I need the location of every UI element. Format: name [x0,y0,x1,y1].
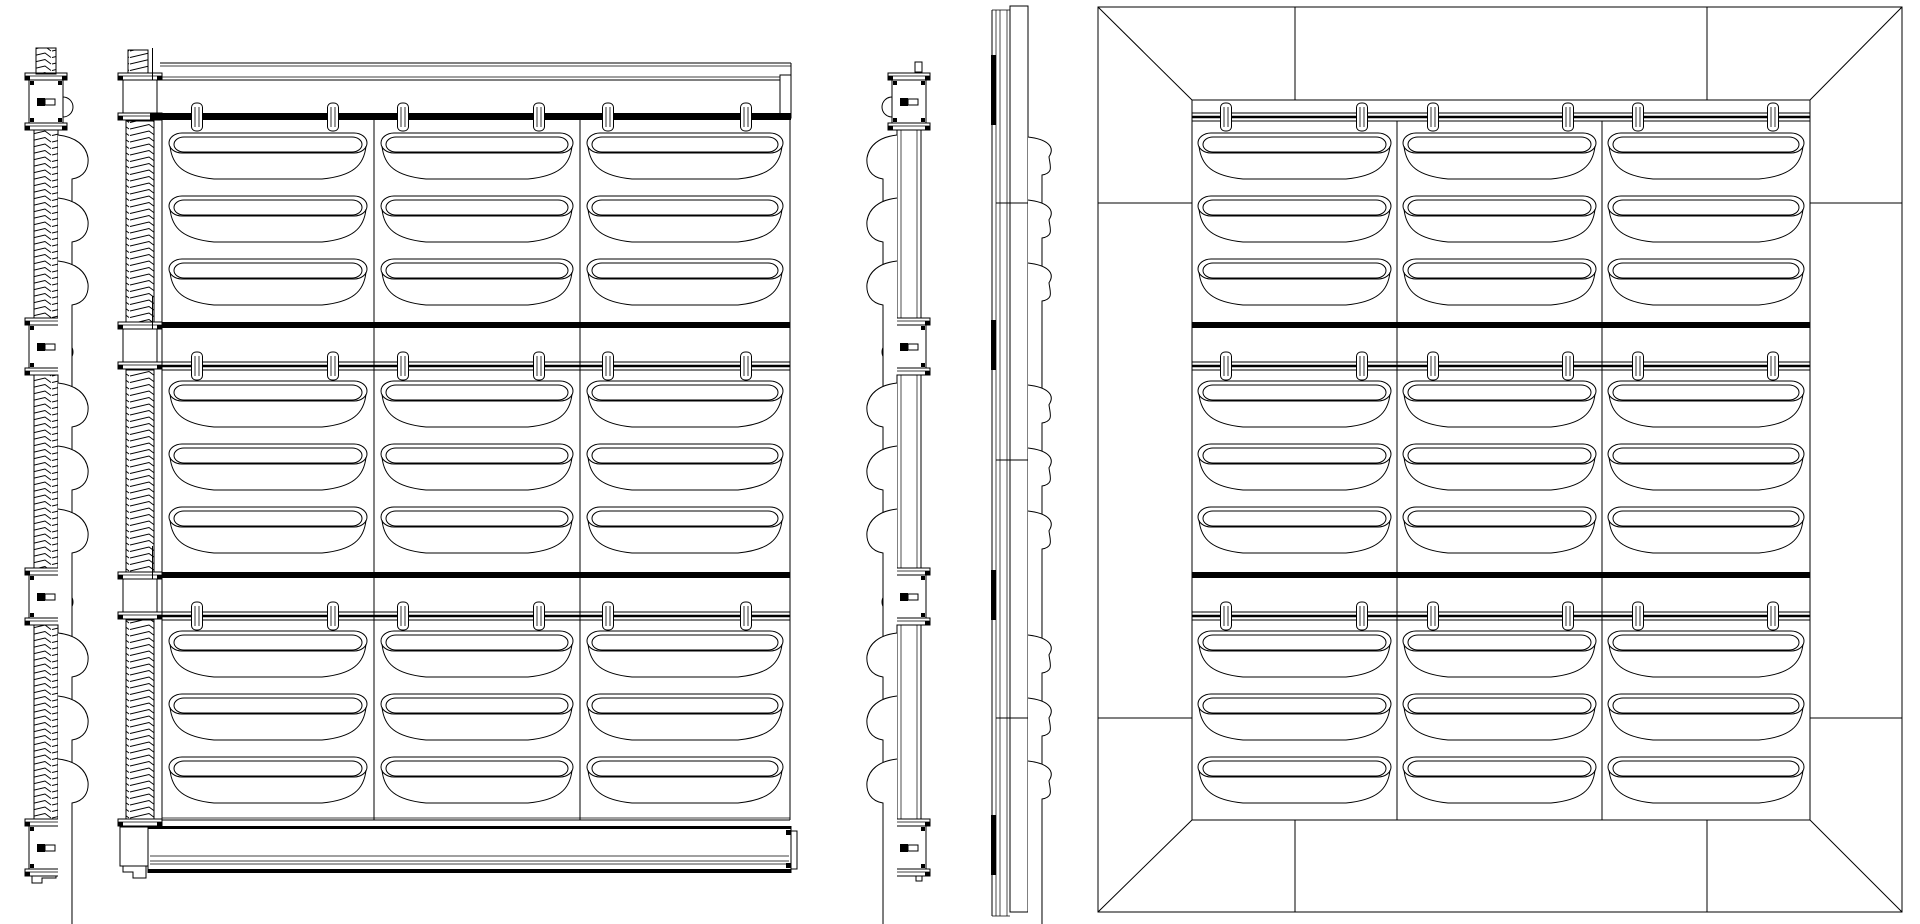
planter-trough [169,507,367,553]
hanger-clip [328,103,339,131]
planter-trough [1403,757,1596,803]
planter-trough [587,381,783,427]
hanger-clip [1563,103,1574,131]
hanger-clip [603,602,614,630]
view-side-profile-hatched [25,48,88,924]
planter-trough [1198,694,1391,740]
hanger-clip [328,602,339,630]
miter-joint [1810,7,1902,100]
rail-flange [118,322,162,329]
planter-trough [1403,694,1596,740]
rail-flange [118,819,162,826]
panel-grid [162,120,790,820]
planter-pocket-profile [58,759,88,924]
mount-knob [882,97,892,117]
hanger-clip [1428,352,1439,380]
planter-trough [169,196,367,242]
top-clip-band [150,113,791,120]
planter-trough [1198,259,1391,305]
planter-trough [381,259,573,305]
hatched-rail-section [34,375,58,568]
hanger-clip [534,103,545,131]
hanger-clip [1768,602,1779,630]
module-bottom-band [1192,322,1810,328]
planter-pocket-profile [867,759,897,924]
planter-trough [1198,381,1391,427]
hanger-clip [192,103,203,131]
panel-slab [1010,6,1028,912]
rail-flange [118,612,162,619]
planter-trough [381,196,573,242]
planter-trough [1198,631,1391,677]
hanger-clip [1633,352,1644,380]
hanger-clip [1221,352,1232,380]
hanger-clip [741,352,752,380]
planter-trough [1403,259,1596,305]
hatched-rail-section [34,625,58,819]
planter-trough [1198,196,1391,242]
hanger-clip [398,602,409,630]
hanger-clip [1357,352,1368,380]
planter-trough [169,757,367,803]
hanger-clip [398,352,409,380]
planter-trough [1198,757,1391,803]
mount-knob [63,97,73,117]
plain-rail-section [897,130,921,318]
planter-trough [1608,259,1804,305]
planter-trough [587,757,783,803]
gutter-end-cap [791,831,797,869]
cad-drawing-page [0,0,1920,924]
planter-trough [1608,694,1804,740]
end-bracket [780,75,791,118]
planter-trough [1608,757,1804,803]
planter-trough [1403,507,1596,553]
bracket-mark [991,815,996,875]
bracket-mark [991,320,996,370]
planter-trough [587,196,783,242]
planter-trough [381,507,573,553]
bracket-box [892,826,926,869]
hanging-rail [1192,362,1810,370]
miter-joint [1810,820,1902,912]
hanger-clip [398,103,409,131]
left-rail-column [118,48,162,878]
hatched-rail-section [126,121,154,322]
rail-flange [118,572,162,579]
planter-trough [1403,196,1596,242]
rail-flange [888,73,930,80]
planter-trough [587,694,783,740]
planter-trough [1403,381,1596,427]
hanger-clip [741,602,752,630]
planter-trough [1198,133,1391,179]
planter-trough [381,694,573,740]
bottom-gutter [148,826,797,873]
hanger-clip [1633,602,1644,630]
view-framed-elevation [1098,7,1902,912]
foot-bracket [32,876,56,883]
top-spring-section [36,48,56,74]
planter-trough [381,133,573,179]
panel-grid [1397,121,1602,820]
planter-trough [1198,444,1391,490]
planter-trough [381,757,573,803]
hanger-clip [192,602,203,630]
bracket-box [882,80,926,123]
planter-trough [381,444,573,490]
planter-trough [1608,381,1804,427]
planter-trough [1608,133,1804,179]
hanging-rail [1192,113,1810,121]
rail-flange [118,362,162,369]
hanger-clip [1768,352,1779,380]
bracket-box [29,80,73,123]
planter-trough [1198,507,1391,553]
bracket-box [29,826,63,869]
planter-trough [1403,631,1596,677]
top-mounting-bar [160,63,791,118]
hatched-rail-section [126,620,154,819]
planter-trough [169,133,367,179]
planter-trough [169,444,367,490]
view-side-profile-plain [867,62,930,924]
planter-trough [381,381,573,427]
hanger-clip [1357,602,1368,630]
miter-joint [1098,820,1192,912]
planter-trough [1403,444,1596,490]
rail-flange [25,123,67,130]
hatched-rail-section [34,130,58,318]
planter-trough [1403,133,1596,179]
planter-trough [169,259,367,305]
hanging-rail [1192,612,1810,620]
plain-rail-section [897,625,921,819]
rail-flange [118,73,162,80]
hanger-clip [603,103,614,131]
hanger-clip [1221,103,1232,131]
planter-trough [1608,196,1804,242]
module-bottom-band [1192,572,1810,578]
planter-trough [587,259,783,305]
hanger-clip [1563,352,1574,380]
hanger-clip [1221,602,1232,630]
planter-trough [587,507,783,553]
planter-trough [1608,631,1804,677]
planter-trough [169,694,367,740]
view-panel-edge-section [991,6,1051,924]
cad-drawing-canvas [0,0,1920,924]
planter-trough [1608,507,1804,553]
planter-trough [169,381,367,427]
rail-flange [888,123,930,130]
hanging-rail [162,362,790,370]
top-spring-section [128,50,148,73]
planter-trough [587,444,783,490]
hanger-clip [192,352,203,380]
top-tab [915,62,922,72]
view-front-elevation [118,48,797,878]
hanger-clip [1563,602,1574,630]
planter-trough [587,631,783,677]
foot-tab [916,876,922,881]
plain-rail-section [897,375,921,568]
hatched-rail-section [126,370,154,572]
hanger-clip [534,602,545,630]
hanger-clip [741,103,752,131]
module-bottom-band [162,572,790,578]
hanger-clip [603,352,614,380]
planter-pocket-profile [1028,761,1051,924]
module-bottom-band [162,322,790,328]
hanger-clip [1428,602,1439,630]
planter-trough [1608,444,1804,490]
hanger-clip [1633,103,1644,131]
miter-joint [1098,7,1192,100]
foot-bracket [123,866,146,878]
planter-trough [169,631,367,677]
hanger-clip [328,352,339,380]
hanging-rail [162,612,790,620]
hanger-clip [534,352,545,380]
hanger-clip [1428,103,1439,131]
bracket-mark [991,55,996,125]
bracket-mark [991,570,996,620]
planter-trough [587,133,783,179]
hanger-clip [1357,103,1368,131]
hanger-clip [1768,103,1779,131]
planter-trough [381,631,573,677]
